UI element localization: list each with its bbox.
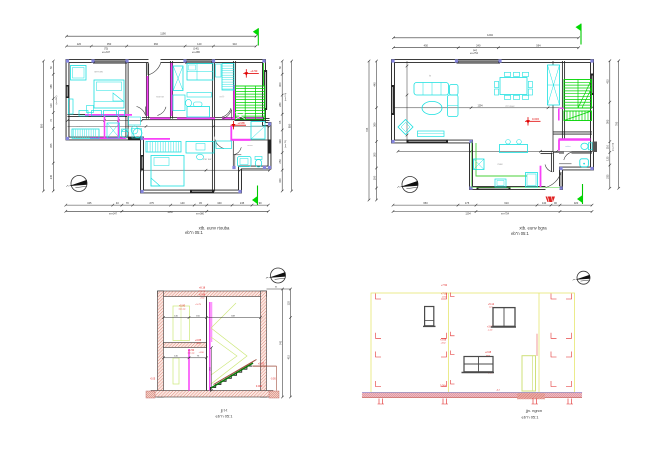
svg-text:+2.88: +2.88 [237,121,245,125]
svg-text:ex+080: ex+080 [192,51,201,54]
svg-text:+7.08: +7.08 [441,293,448,296]
svg-text:+2.08: +2.08 [485,351,492,354]
svg-text:385: 385 [49,84,53,89]
svg-text:-0.05: -0.05 [270,378,276,380]
svg-text:+6.92: +6.92 [441,297,447,299]
svg-text:(ex+347): (ex+347) [56,95,58,104]
svg-text:(ex+75): (ex+75) [285,140,287,148]
svg-text:650: 650 [423,201,428,205]
svg-text:275: 275 [150,201,155,205]
svg-text:140: 140 [180,201,185,205]
svg-text:+3.80: +3.80 [195,343,201,345]
svg-text:+7.50: +7.50 [441,284,448,287]
svg-text:395: 395 [606,119,610,124]
svg-text:xrer aw: xrer aw [94,70,103,74]
svg-text:310: 310 [233,42,238,46]
svg-text:245: 245 [240,201,245,205]
svg-text:+3.88: +3.88 [195,339,202,342]
svg-text:445: 445 [372,82,376,87]
svg-text:-0.05: -0.05 [150,378,156,380]
svg-text:1250: 1250 [167,211,173,214]
svg-text:rtn' avex: rtn' avex [506,105,516,108]
svg-text:ex+347: ex+347 [102,51,111,54]
svg-text:175: 175 [465,201,470,205]
svg-text:330: 330 [278,139,282,144]
svg-text:125: 125 [286,301,290,306]
svg-text:110: 110 [606,144,610,149]
svg-text:850: 850 [287,123,291,128]
svg-text:300: 300 [278,178,282,183]
svg-text:+5.80: +5.80 [179,305,186,308]
svg-text:jj t-t: jj t-t [220,408,228,413]
svg-text:xtb. eunv rtouba: xtb. eunv rtouba [199,225,230,230]
svg-text:0.00±: 0.00± [256,385,263,388]
svg-text:wvra crp: wvra crp [199,291,206,293]
svg-text:+7.88: +7.88 [199,294,206,297]
svg-text:nn"r: nn"r [220,95,225,99]
svg-text:415: 415 [606,79,610,84]
svg-text:345: 345 [87,201,92,205]
svg-text:wvrenn: wvrenn [111,125,119,128]
svg-text:1294: 1294 [465,213,471,216]
svg-text:wvra crp: wvra crp [188,353,195,355]
svg-text:ronve: ronve [247,144,253,147]
svg-text:+1.50: +1.50 [188,349,195,352]
svg-text:eb"n 05:1: eb"n 05:1 [185,230,203,235]
svg-text:245: 245 [49,174,53,179]
svg-text:wvra crp: wvra crp [179,308,186,310]
svg-text:wvra: wvra [489,306,493,308]
svg-text:xrer aw: xrer aw [203,157,212,161]
svg-text:340: 340 [217,201,222,205]
svg-text:140: 140 [197,42,202,46]
svg-text:250: 250 [278,159,282,164]
svg-text:120: 120 [49,103,53,108]
svg-text:+1.58: +1.58 [198,352,204,354]
svg-text:735: 735 [365,127,369,132]
svg-text:355: 355 [49,143,53,148]
svg-text:235: 235 [606,174,610,179]
svg-text:360: 360 [154,42,159,46]
svg-text:280: 280 [278,102,282,107]
svg-text:ex+080: ex+080 [196,212,205,215]
svg-text:300: 300 [278,82,282,87]
svg-text:200: 200 [372,175,376,180]
svg-text:1294: 1294 [487,33,493,37]
svg-text:120: 120 [77,42,82,46]
svg-text:ex+347: ex+347 [109,212,118,215]
svg-text:ex+754: ex+754 [470,52,479,55]
svg-text:eb"n 05:1: eb"n 05:1 [216,413,234,418]
svg-text:350: 350 [107,42,112,46]
svg-text:795: 795 [615,121,619,126]
svg-text:ananve: ananve [76,126,84,128]
svg-text:rr.ar xn: rr.ar xn [156,95,165,99]
svg-text:xtb. eunv bgra: xtb. eunv bgra [519,225,547,230]
svg-text:1294: 1294 [477,106,483,108]
svg-text:360: 360 [372,122,376,127]
svg-text:+5.73: +5.73 [195,304,201,306]
svg-text:265: 265 [372,152,376,157]
svg-text:+8.18: +8.18 [199,286,206,289]
svg-text:+3.68: +3.68 [440,338,447,341]
svg-text:jjn. ngrcn: jjn. ngrcn [525,408,542,413]
svg-text:450: 450 [424,44,429,48]
svg-text:nvax: nvax [497,163,503,166]
svg-text:ex+754: ex+754 [501,213,510,216]
svg-text:eb"n 05:1: eb"n 05:1 [511,231,529,236]
svg-text:850: 850 [39,123,43,128]
svg-text:+1.87: +1.87 [258,362,265,365]
svg-text:140: 140 [542,201,547,205]
svg-text:(ex+0.0): (ex+0.0) [285,93,287,101]
svg-text:415: 415 [286,355,290,360]
svg-text:0.00±: 0.00± [440,384,447,387]
svg-text:740: 740 [279,340,282,345]
svg-text:610: 610 [504,201,509,205]
svg-text:320: 320 [574,201,579,205]
svg-text:+7.50: +7.50 [200,298,205,300]
svg-text:(ex+0.0): (ex+0.0) [612,143,614,151]
svg-text:nelxa: nelxa [565,146,571,148]
svg-text:eb"n 05:1: eb"n 05:1 [522,414,540,419]
svg-text:240: 240 [476,44,481,48]
svg-text:0.00±: 0.00± [532,117,539,121]
svg-text:1190: 1190 [160,31,166,35]
svg-text:125: 125 [606,156,610,161]
svg-text:+4.50: +4.50 [250,69,258,73]
svg-text:+3.52: +3.52 [440,342,446,344]
svg-text:594: 594 [536,44,541,48]
svg-text:+5.12: +5.12 [488,303,495,306]
